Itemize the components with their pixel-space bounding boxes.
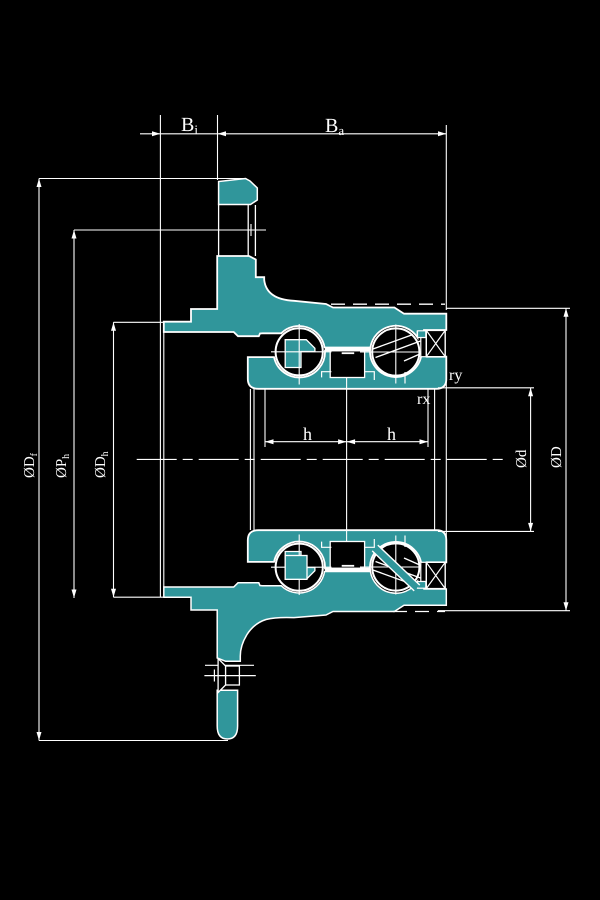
svg-text:h: h	[387, 424, 396, 444]
svg-text:h: h	[303, 424, 312, 444]
svg-text:ry: ry	[449, 367, 462, 384]
svg-text:rx: rx	[417, 391, 430, 408]
svg-text:Ød: Ød	[514, 449, 530, 468]
svg-text:ØD: ØD	[549, 446, 565, 468]
